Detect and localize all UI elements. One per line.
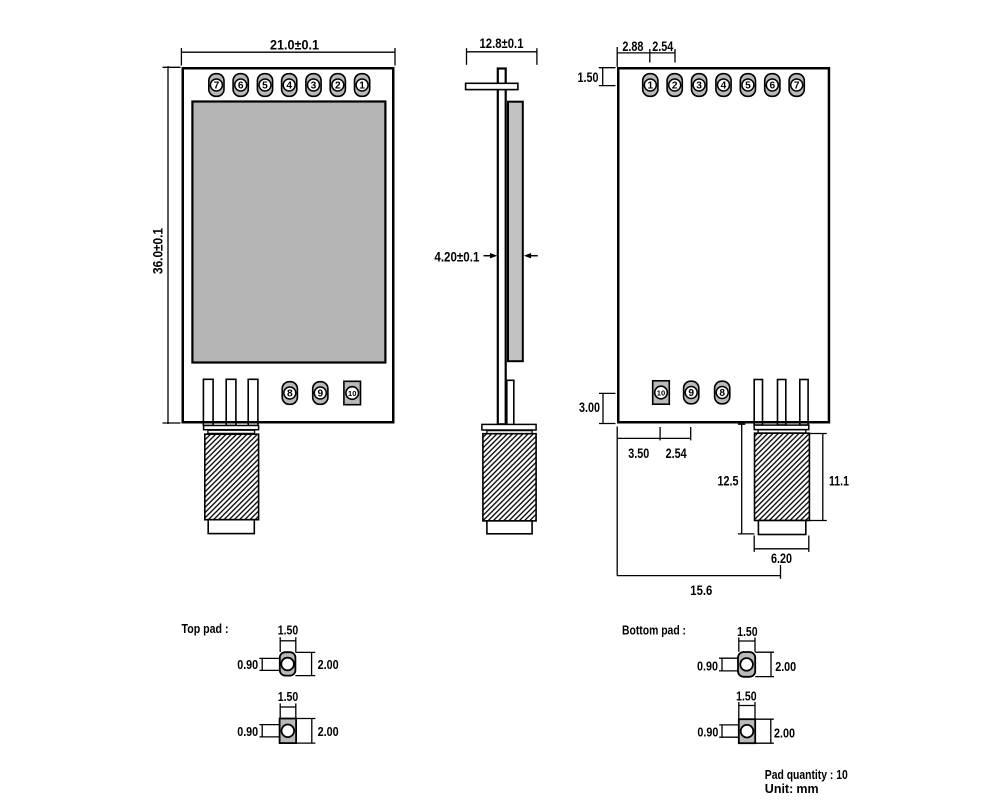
svg-text:2.54: 2.54 [666,445,687,461]
svg-text:2.00: 2.00 [775,659,796,674]
svg-text:10: 10 [348,389,356,398]
svg-text:2: 2 [672,81,678,92]
svg-text:Bottom pad :: Bottom pad : [622,624,686,638]
svg-text:1.50: 1.50 [278,689,299,704]
svg-text:7: 7 [794,81,800,92]
svg-text:9: 9 [688,388,694,399]
svg-text:0.90: 0.90 [237,724,258,739]
svg-text:12.8±0.1: 12.8±0.1 [480,35,524,51]
svg-text:0.90: 0.90 [237,657,258,672]
svg-text:3: 3 [311,81,317,92]
svg-text:9: 9 [317,389,323,400]
svg-text:2: 2 [335,81,341,92]
svg-text:4: 4 [721,81,727,92]
svg-text:1.50: 1.50 [578,69,599,85]
svg-text:Top pad :: Top pad : [182,622,229,636]
svg-text:6: 6 [238,81,244,92]
svg-text:3.50: 3.50 [628,445,649,461]
svg-text:0.90: 0.90 [697,659,718,674]
svg-text:1.50: 1.50 [737,624,758,639]
svg-text:8: 8 [719,388,725,399]
svg-text:15.6: 15.6 [690,582,712,598]
svg-text:2.00: 2.00 [318,724,339,739]
svg-text:mm: mm [796,782,818,796]
svg-text:8: 8 [287,389,293,400]
svg-text:12.5: 12.5 [718,473,739,489]
svg-text:1.50: 1.50 [278,623,299,638]
svg-text:3.00: 3.00 [579,399,600,415]
svg-text:4: 4 [286,81,292,92]
svg-text:Pad quantity : 10: Pad quantity : 10 [765,768,848,782]
svg-text:Unit:: Unit: [765,782,793,796]
svg-text:1: 1 [359,81,365,92]
svg-text:6: 6 [769,81,775,92]
svg-text:1.50: 1.50 [736,688,757,703]
svg-text:36.0±0.1: 36.0±0.1 [149,228,165,274]
svg-text:2.54: 2.54 [652,38,673,54]
svg-text:2.00: 2.00 [774,726,795,741]
svg-text:2.88: 2.88 [622,38,643,54]
svg-text:1: 1 [647,81,653,92]
svg-text:21.0±0.1: 21.0±0.1 [270,37,319,53]
svg-text:3: 3 [696,81,702,92]
svg-text:0.90: 0.90 [697,725,718,740]
svg-text:5: 5 [262,81,268,92]
svg-text:10: 10 [657,388,665,397]
svg-text:2.00: 2.00 [318,657,339,672]
svg-text:7: 7 [214,81,220,92]
svg-text:5: 5 [745,81,751,92]
svg-text:4.20±0.1: 4.20±0.1 [434,248,479,264]
svg-text:6.20: 6.20 [771,550,792,566]
svg-text:11.1: 11.1 [829,473,849,489]
